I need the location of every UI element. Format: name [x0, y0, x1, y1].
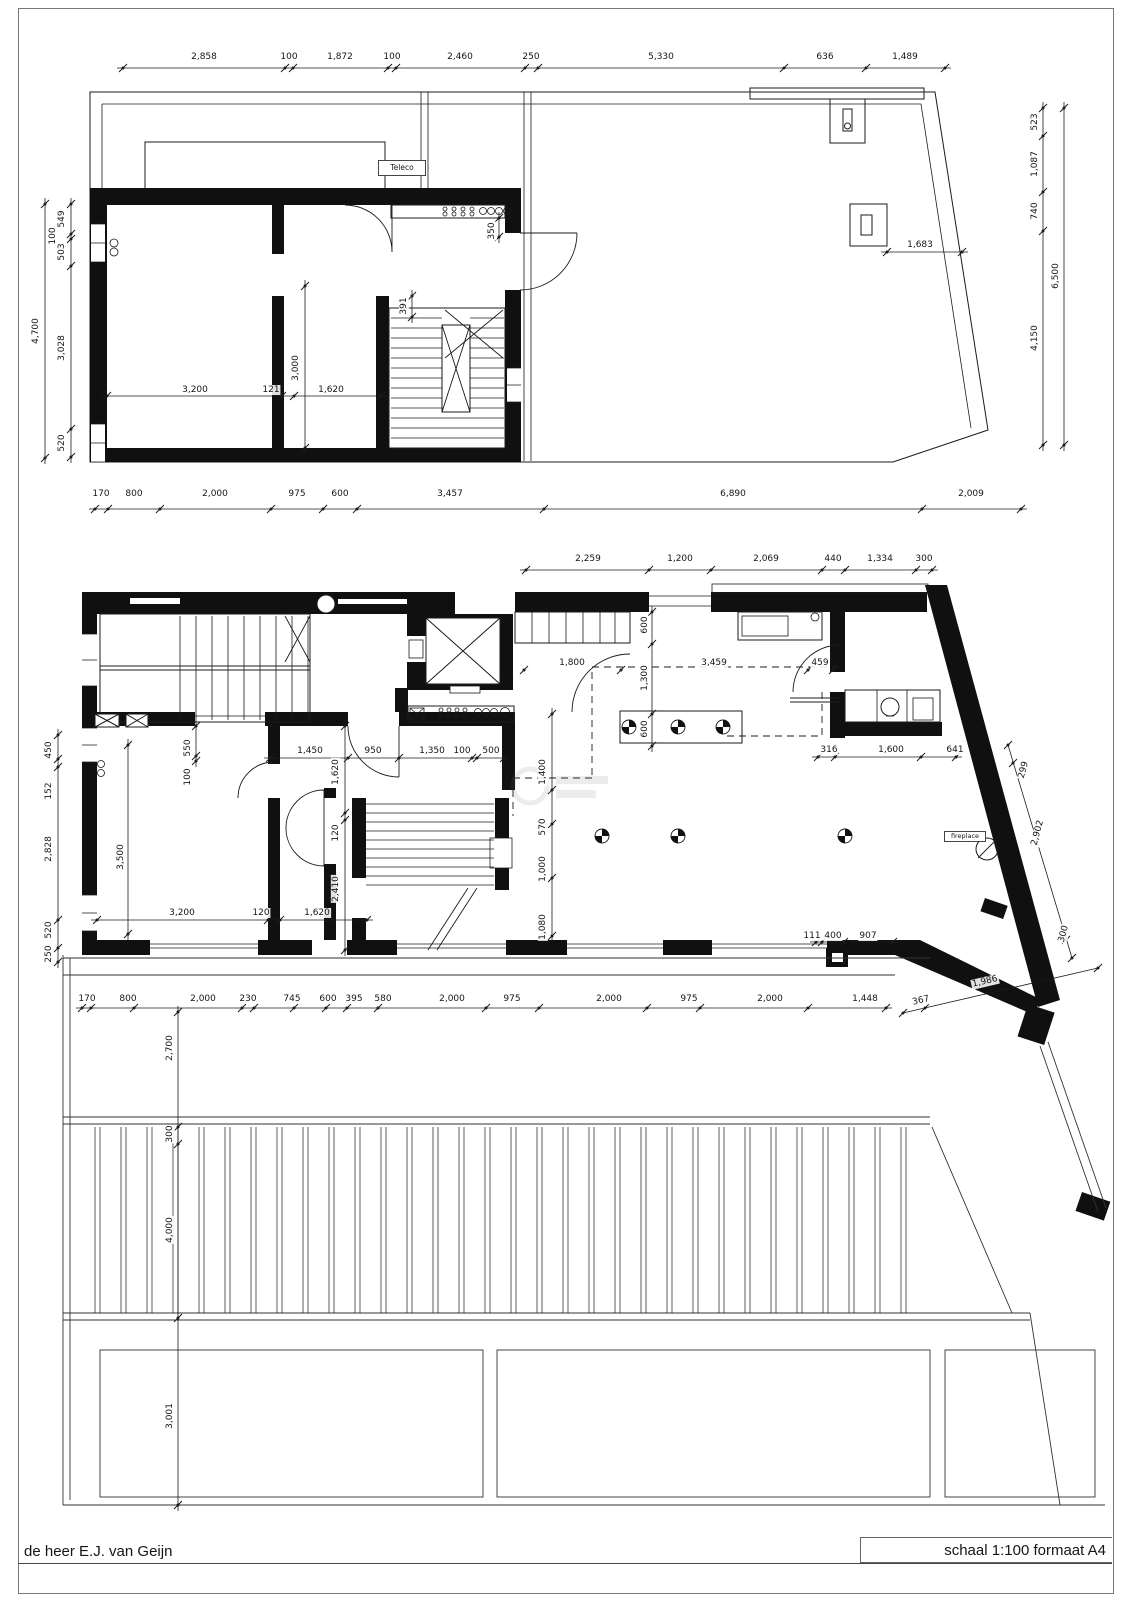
dim: 300 [165, 1124, 175, 1143]
dim: 459 [810, 658, 829, 668]
dim: 600 [640, 719, 650, 738]
dim: 120 [251, 908, 270, 918]
dim: 1,620 [331, 758, 341, 786]
dim: 1,620 [303, 908, 331, 918]
dim: 2,259 [574, 554, 602, 564]
dim: 2,000 [595, 994, 623, 1004]
dim: 2,858 [190, 52, 218, 62]
dim: 3,200 [181, 385, 209, 395]
dim: 2,069 [752, 554, 780, 564]
dim: 2,410 [331, 875, 341, 903]
dim: 550 [183, 738, 193, 757]
dim: 440 [823, 554, 842, 564]
dim: 2,460 [446, 52, 474, 62]
dim: 975 [502, 994, 521, 1004]
dim: 636 [815, 52, 834, 62]
dim: 1,400 [538, 758, 548, 786]
dim: 250 [521, 52, 540, 62]
dim: 2,000 [189, 994, 217, 1004]
dim: 316 [819, 745, 838, 755]
dim: 600 [318, 994, 337, 1004]
fireplace-label: fireplace [944, 831, 986, 842]
dim: 5,330 [647, 52, 675, 62]
dim: 1,600 [877, 745, 905, 755]
dim: 2,009 [957, 489, 985, 499]
drawing-sheet: 2,858 100 1,872 100 2,460 250 5,330 636 … [0, 0, 1131, 1600]
dim: 1,800 [558, 658, 586, 668]
dim: 250 [44, 944, 54, 963]
dim: 170 [77, 994, 96, 1004]
dim: 3,459 [700, 658, 728, 668]
plan-linework [0, 0, 1131, 1600]
dim: 3,001 [165, 1402, 175, 1430]
dim: 4,700 [31, 317, 41, 345]
dim: 230 [238, 994, 257, 1004]
dim: 570 [538, 817, 548, 836]
dim: 2,700 [165, 1034, 175, 1062]
dim: 1,448 [851, 994, 879, 1004]
dim: 100 [382, 52, 401, 62]
dim: 1,334 [866, 554, 894, 564]
dim: 100 [452, 746, 471, 756]
dim: 520 [57, 433, 67, 452]
dim: 1,200 [666, 554, 694, 564]
dim: 395 [344, 994, 363, 1004]
dim: 800 [118, 994, 137, 1004]
dim: 1,489 [891, 52, 919, 62]
dim: 800 [124, 489, 143, 499]
dim: 2,828 [44, 835, 54, 863]
dim: 120 [331, 823, 341, 842]
dim: 1,350 [418, 746, 446, 756]
dim: 3,457 [436, 489, 464, 499]
dim: 152 [44, 781, 54, 800]
dim: 3,028 [57, 334, 67, 362]
dim: 6,500 [1051, 262, 1061, 290]
dim: 740 [1030, 201, 1040, 220]
dim: 600 [640, 615, 650, 634]
dim: 1,620 [317, 385, 345, 395]
dim: 391 [399, 296, 409, 315]
dim: 523 [1030, 112, 1040, 131]
dim: 6,890 [719, 489, 747, 499]
dim: 907 [858, 931, 877, 941]
dim: 745 [282, 994, 301, 1004]
dim: 4,150 [1030, 324, 1040, 352]
dim: 111 [802, 931, 821, 941]
dim: 2,000 [438, 994, 466, 1004]
dim: 1,080 [538, 913, 548, 941]
dim: 3,000 [291, 354, 301, 382]
dim: 300 [914, 554, 933, 564]
generated-linework [41, 64, 1102, 1511]
garden-bed [945, 1350, 1095, 1497]
dim: 1,450 [296, 746, 324, 756]
dim: 520 [44, 920, 54, 939]
dim: 975 [287, 489, 306, 499]
dim: 503 [57, 242, 67, 261]
site-terrace [63, 955, 1106, 1505]
dim: 450 [44, 740, 54, 759]
dim: 100 [279, 52, 298, 62]
dim: 1,872 [326, 52, 354, 62]
garden-bed [497, 1350, 930, 1497]
dim: 3,200 [168, 908, 196, 918]
dim: 600 [330, 489, 349, 499]
dim: 1,000 [538, 855, 548, 883]
dim: 2,000 [201, 489, 229, 499]
watermark [513, 769, 608, 803]
dim: 4,000 [165, 1216, 175, 1244]
dim: 641 [945, 745, 964, 755]
door-arc [520, 233, 577, 290]
dim: 500 [481, 746, 500, 756]
dim: 549 [57, 209, 67, 228]
dim: 1,300 [640, 664, 650, 692]
dim: 100 [183, 767, 193, 786]
upper-floor-plan [90, 88, 988, 462]
dim: 400 [823, 931, 842, 941]
dim: 950 [363, 746, 382, 756]
footer-client-name: de heer E.J. van Geijn [24, 1543, 172, 1561]
lower-walls [82, 585, 1110, 1221]
lower-floor-plan [82, 584, 1110, 1221]
dim: 1,683 [906, 240, 934, 250]
dim: 2,000 [756, 994, 784, 1004]
footer-scale-box: schaal 1:100 formaat A4 [860, 1537, 1112, 1563]
dim: 580 [373, 994, 392, 1004]
dim: 975 [679, 994, 698, 1004]
dim: 1,087 [1030, 150, 1040, 178]
dim: 121 [261, 385, 280, 395]
dim: 170 [91, 489, 110, 499]
teleco-label: Teleco [378, 160, 426, 176]
garden-bed [100, 1350, 483, 1497]
dim: 350 [487, 221, 497, 240]
dim: 3,500 [116, 843, 126, 871]
